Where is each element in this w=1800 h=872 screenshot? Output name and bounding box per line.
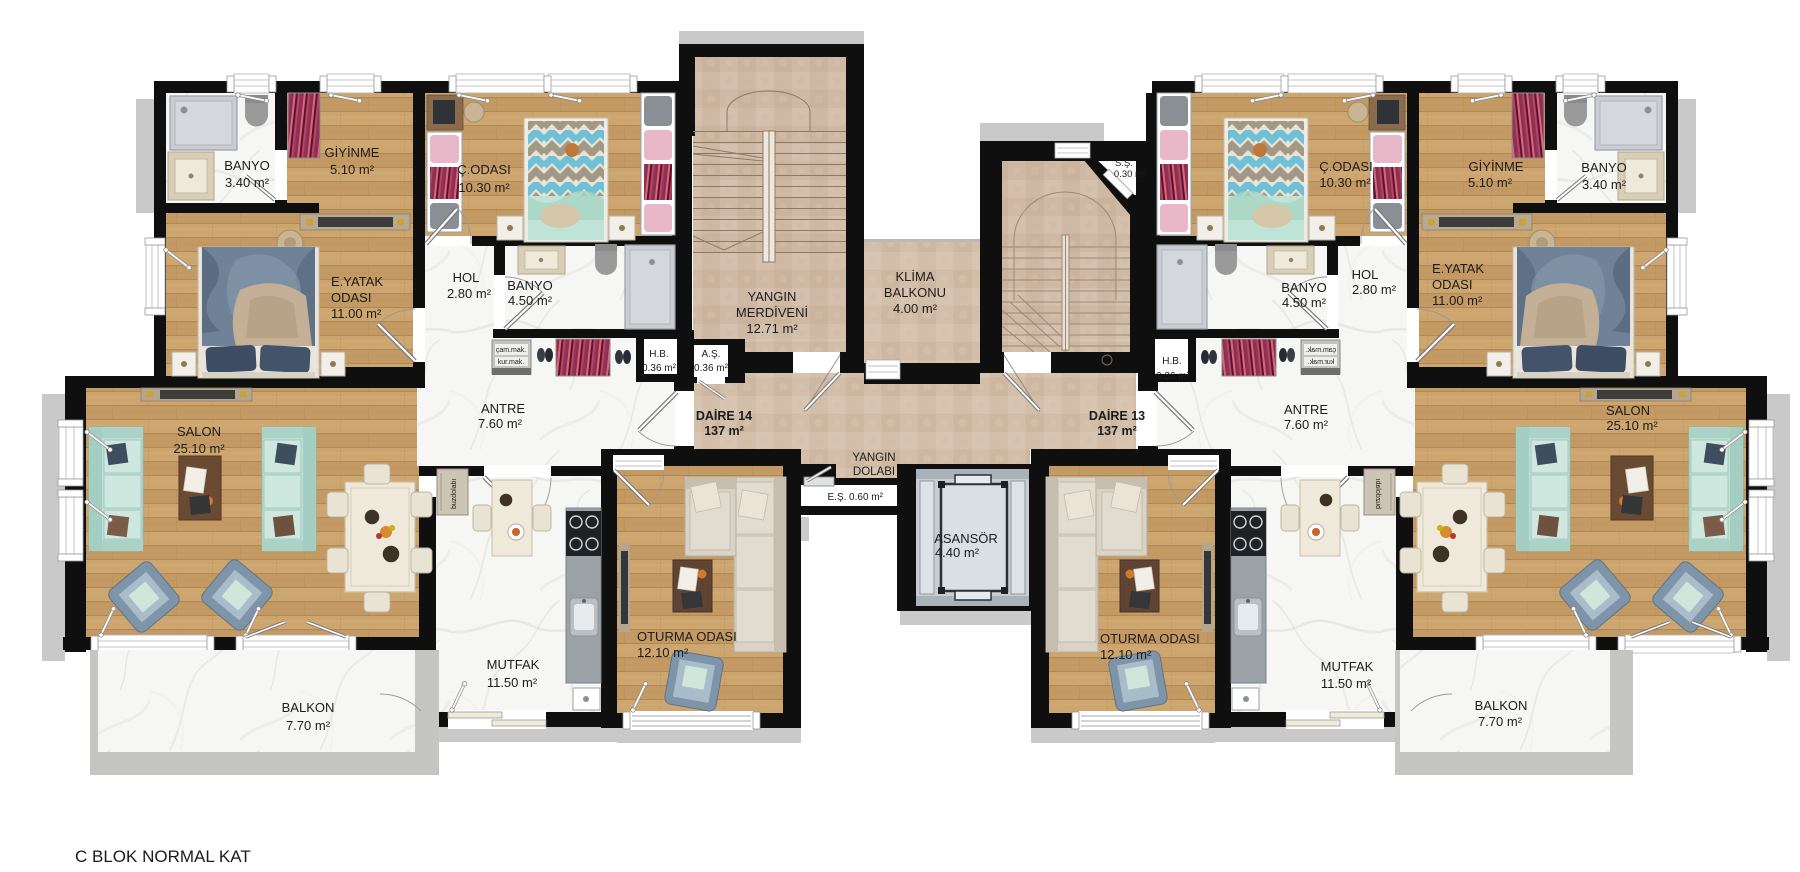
svg-text:H.B.: H.B.	[649, 349, 668, 360]
svg-text:0.36 m²: 0.36 m²	[642, 363, 677, 374]
svg-text:11.50 m²: 11.50 m²	[487, 675, 538, 690]
svg-text:11.00 m²: 11.00 m²	[331, 306, 382, 321]
svg-text:BALKONU: BALKONU	[884, 285, 946, 300]
svg-text:GİYİNME: GİYİNME	[1469, 159, 1524, 174]
svg-text:OTURMA ODASI: OTURMA ODASI	[1100, 631, 1200, 646]
svg-text:A.Ş.: A.Ş.	[702, 349, 721, 360]
svg-text:kur.mak.: kur.mak.	[498, 359, 525, 366]
svg-text:10.30 m²: 10.30 m²	[458, 180, 510, 195]
svg-text:BANYO: BANYO	[1281, 280, 1327, 295]
svg-text:C BLOK NORMAL KAT: C BLOK NORMAL KAT	[75, 847, 251, 866]
svg-text:4.50 m²: 4.50 m²	[1282, 295, 1327, 310]
svg-text:10.30 m²: 10.30 m²	[1319, 175, 1371, 190]
svg-text:SALON: SALON	[1606, 403, 1650, 418]
svg-text:BALKON: BALKON	[1475, 698, 1528, 713]
svg-text:DAİRE 14: DAİRE 14	[696, 408, 752, 423]
svg-text:0.60 m²: 0.60 m²	[849, 492, 884, 503]
svg-text:BANYO: BANYO	[224, 158, 270, 173]
svg-text:7.60 m²: 7.60 m²	[478, 416, 523, 431]
svg-text:Ç.ODASI: Ç.ODASI	[457, 162, 510, 177]
svg-text:MERDİVENİ: MERDİVENİ	[736, 305, 808, 320]
svg-text:4.00 m²: 4.00 m²	[893, 301, 938, 316]
svg-text:ODASI: ODASI	[1432, 277, 1472, 292]
svg-text:7.70 m²: 7.70 m²	[1478, 714, 1523, 729]
svg-text:12.71 m²: 12.71 m²	[746, 321, 798, 336]
svg-text:0.36 m²: 0.36 m²	[1156, 371, 1191, 382]
svg-text:7.60 m²: 7.60 m²	[1284, 417, 1329, 432]
svg-text:12.10 m²: 12.10 m²	[637, 645, 689, 660]
svg-text:2.80 m²: 2.80 m²	[447, 286, 492, 301]
svg-text:3.40 m²: 3.40 m²	[1582, 177, 1627, 192]
svg-text:YANGIN: YANGIN	[852, 452, 895, 464]
svg-text:4.50 m²: 4.50 m²	[508, 293, 553, 308]
svg-text:2.80 m²: 2.80 m²	[1352, 282, 1397, 297]
svg-text:11.00 m²: 11.00 m²	[1432, 293, 1483, 308]
svg-text:E.YATAK: E.YATAK	[1432, 261, 1484, 276]
svg-text:ASANSÖR: ASANSÖR	[934, 531, 998, 546]
svg-text:7.70 m²: 7.70 m²	[286, 718, 331, 733]
svg-text:BALKON: BALKON	[282, 700, 335, 715]
svg-text:çam.mak.: çam.mak.	[496, 347, 526, 354]
svg-text:MUTFAK: MUTFAK	[1321, 659, 1374, 674]
svg-text:E.Ş.: E.Ş.	[828, 492, 847, 503]
svg-text:KLİMA: KLİMA	[895, 269, 934, 284]
svg-text:5.10 m²: 5.10 m²	[330, 162, 375, 177]
svg-text:GİYİNME: GİYİNME	[325, 145, 380, 160]
svg-text:BANYO: BANYO	[1581, 160, 1627, 175]
svg-text:OTURMA ODASI: OTURMA ODASI	[637, 629, 737, 644]
svg-text:H.B.: H.B.	[1162, 356, 1181, 367]
svg-text:25.10 m²: 25.10 m²	[173, 441, 225, 456]
svg-text:0.36 m²: 0.36 m²	[694, 363, 729, 374]
svg-text:25.10 m²: 25.10 m²	[1606, 418, 1658, 433]
svg-text:BANYO: BANYO	[507, 278, 553, 293]
svg-text:ANTRE: ANTRE	[1284, 402, 1328, 417]
svg-text:YANGIN: YANGIN	[748, 289, 797, 304]
svg-text:DAİRE 13: DAİRE 13	[1089, 408, 1145, 423]
svg-text:buzdolabı: buzdolabı	[451, 479, 458, 509]
svg-text:12.10 m²: 12.10 m²	[1100, 647, 1152, 662]
svg-text:3.40 m²: 3.40 m²	[225, 175, 270, 190]
svg-text:SALON: SALON	[177, 424, 221, 439]
svg-text:0.30 m²: 0.30 m²	[1114, 169, 1146, 180]
svg-text:137 m²: 137 m²	[1097, 424, 1137, 438]
svg-text:5.10 m²: 5.10 m²	[1468, 175, 1513, 190]
svg-text:S.Ş.: S.Ş.	[1115, 158, 1133, 169]
svg-text:4.40 m²: 4.40 m²	[935, 545, 980, 560]
svg-text:MUTFAK: MUTFAK	[487, 657, 540, 672]
svg-text:Ç.ODASI: Ç.ODASI	[1319, 159, 1372, 174]
svg-text:ANTRE: ANTRE	[481, 401, 525, 416]
svg-text:E.YATAK: E.YATAK	[331, 274, 383, 289]
svg-text:ODASI: ODASI	[331, 290, 371, 305]
svg-text:137 m²: 137 m²	[704, 424, 744, 438]
svg-text:DOLABI: DOLABI	[853, 466, 895, 478]
svg-text:11.50 m²: 11.50 m²	[1321, 676, 1372, 691]
svg-text:HOL: HOL	[453, 270, 480, 285]
svg-text:HOL: HOL	[1352, 267, 1379, 282]
